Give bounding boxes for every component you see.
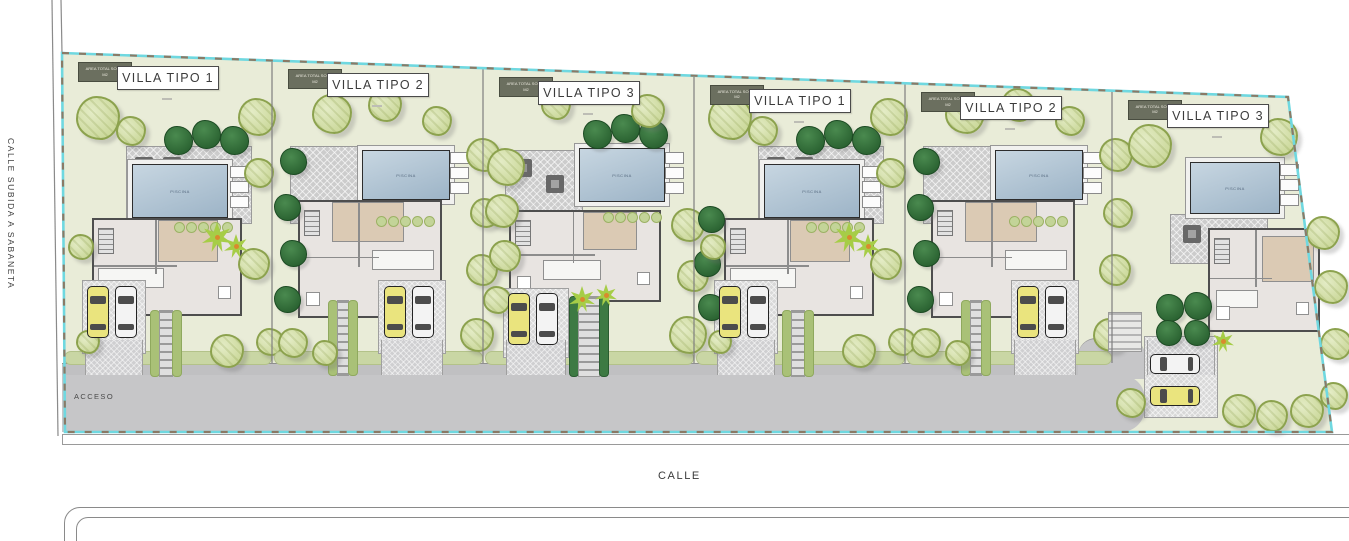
lot-divider-lines	[272, 61, 1112, 364]
street-edge-line-outer	[52, 0, 58, 436]
boundary-lines	[0, 0, 1349, 541]
site-boundary-cyan	[62, 53, 1332, 432]
street-edge-line-inner	[61, 0, 62, 53]
bottom-street-label: CALLE	[658, 470, 701, 482]
access-road-label: ACCESO	[74, 392, 114, 401]
site-boundary-dashes	[62, 53, 1332, 432]
street-left-label: CALLE SUBIDA A SABANETA	[6, 138, 16, 348]
site-plan-canvas: PISCINAAREA TOTAL SOLARM2VILLA TIPO 1PIS…	[0, 0, 1349, 541]
